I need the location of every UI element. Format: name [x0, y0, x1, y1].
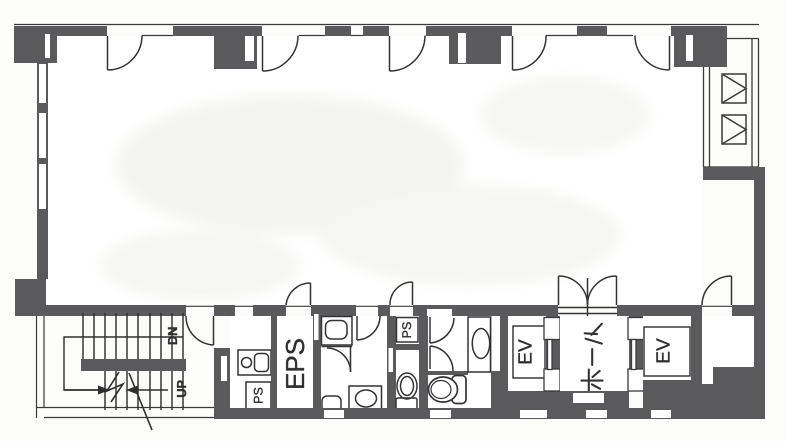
svg-text:UP: UP	[174, 380, 189, 398]
svg-text:PS: PS	[252, 387, 266, 404]
svg-text:PS: PS	[400, 322, 414, 339]
svg-text:DN: DN	[165, 327, 180, 345]
svg-text:EV: EV	[654, 338, 675, 364]
svg-text:EV: EV	[516, 339, 537, 365]
svg-text:EPS: EPS	[280, 338, 310, 390]
